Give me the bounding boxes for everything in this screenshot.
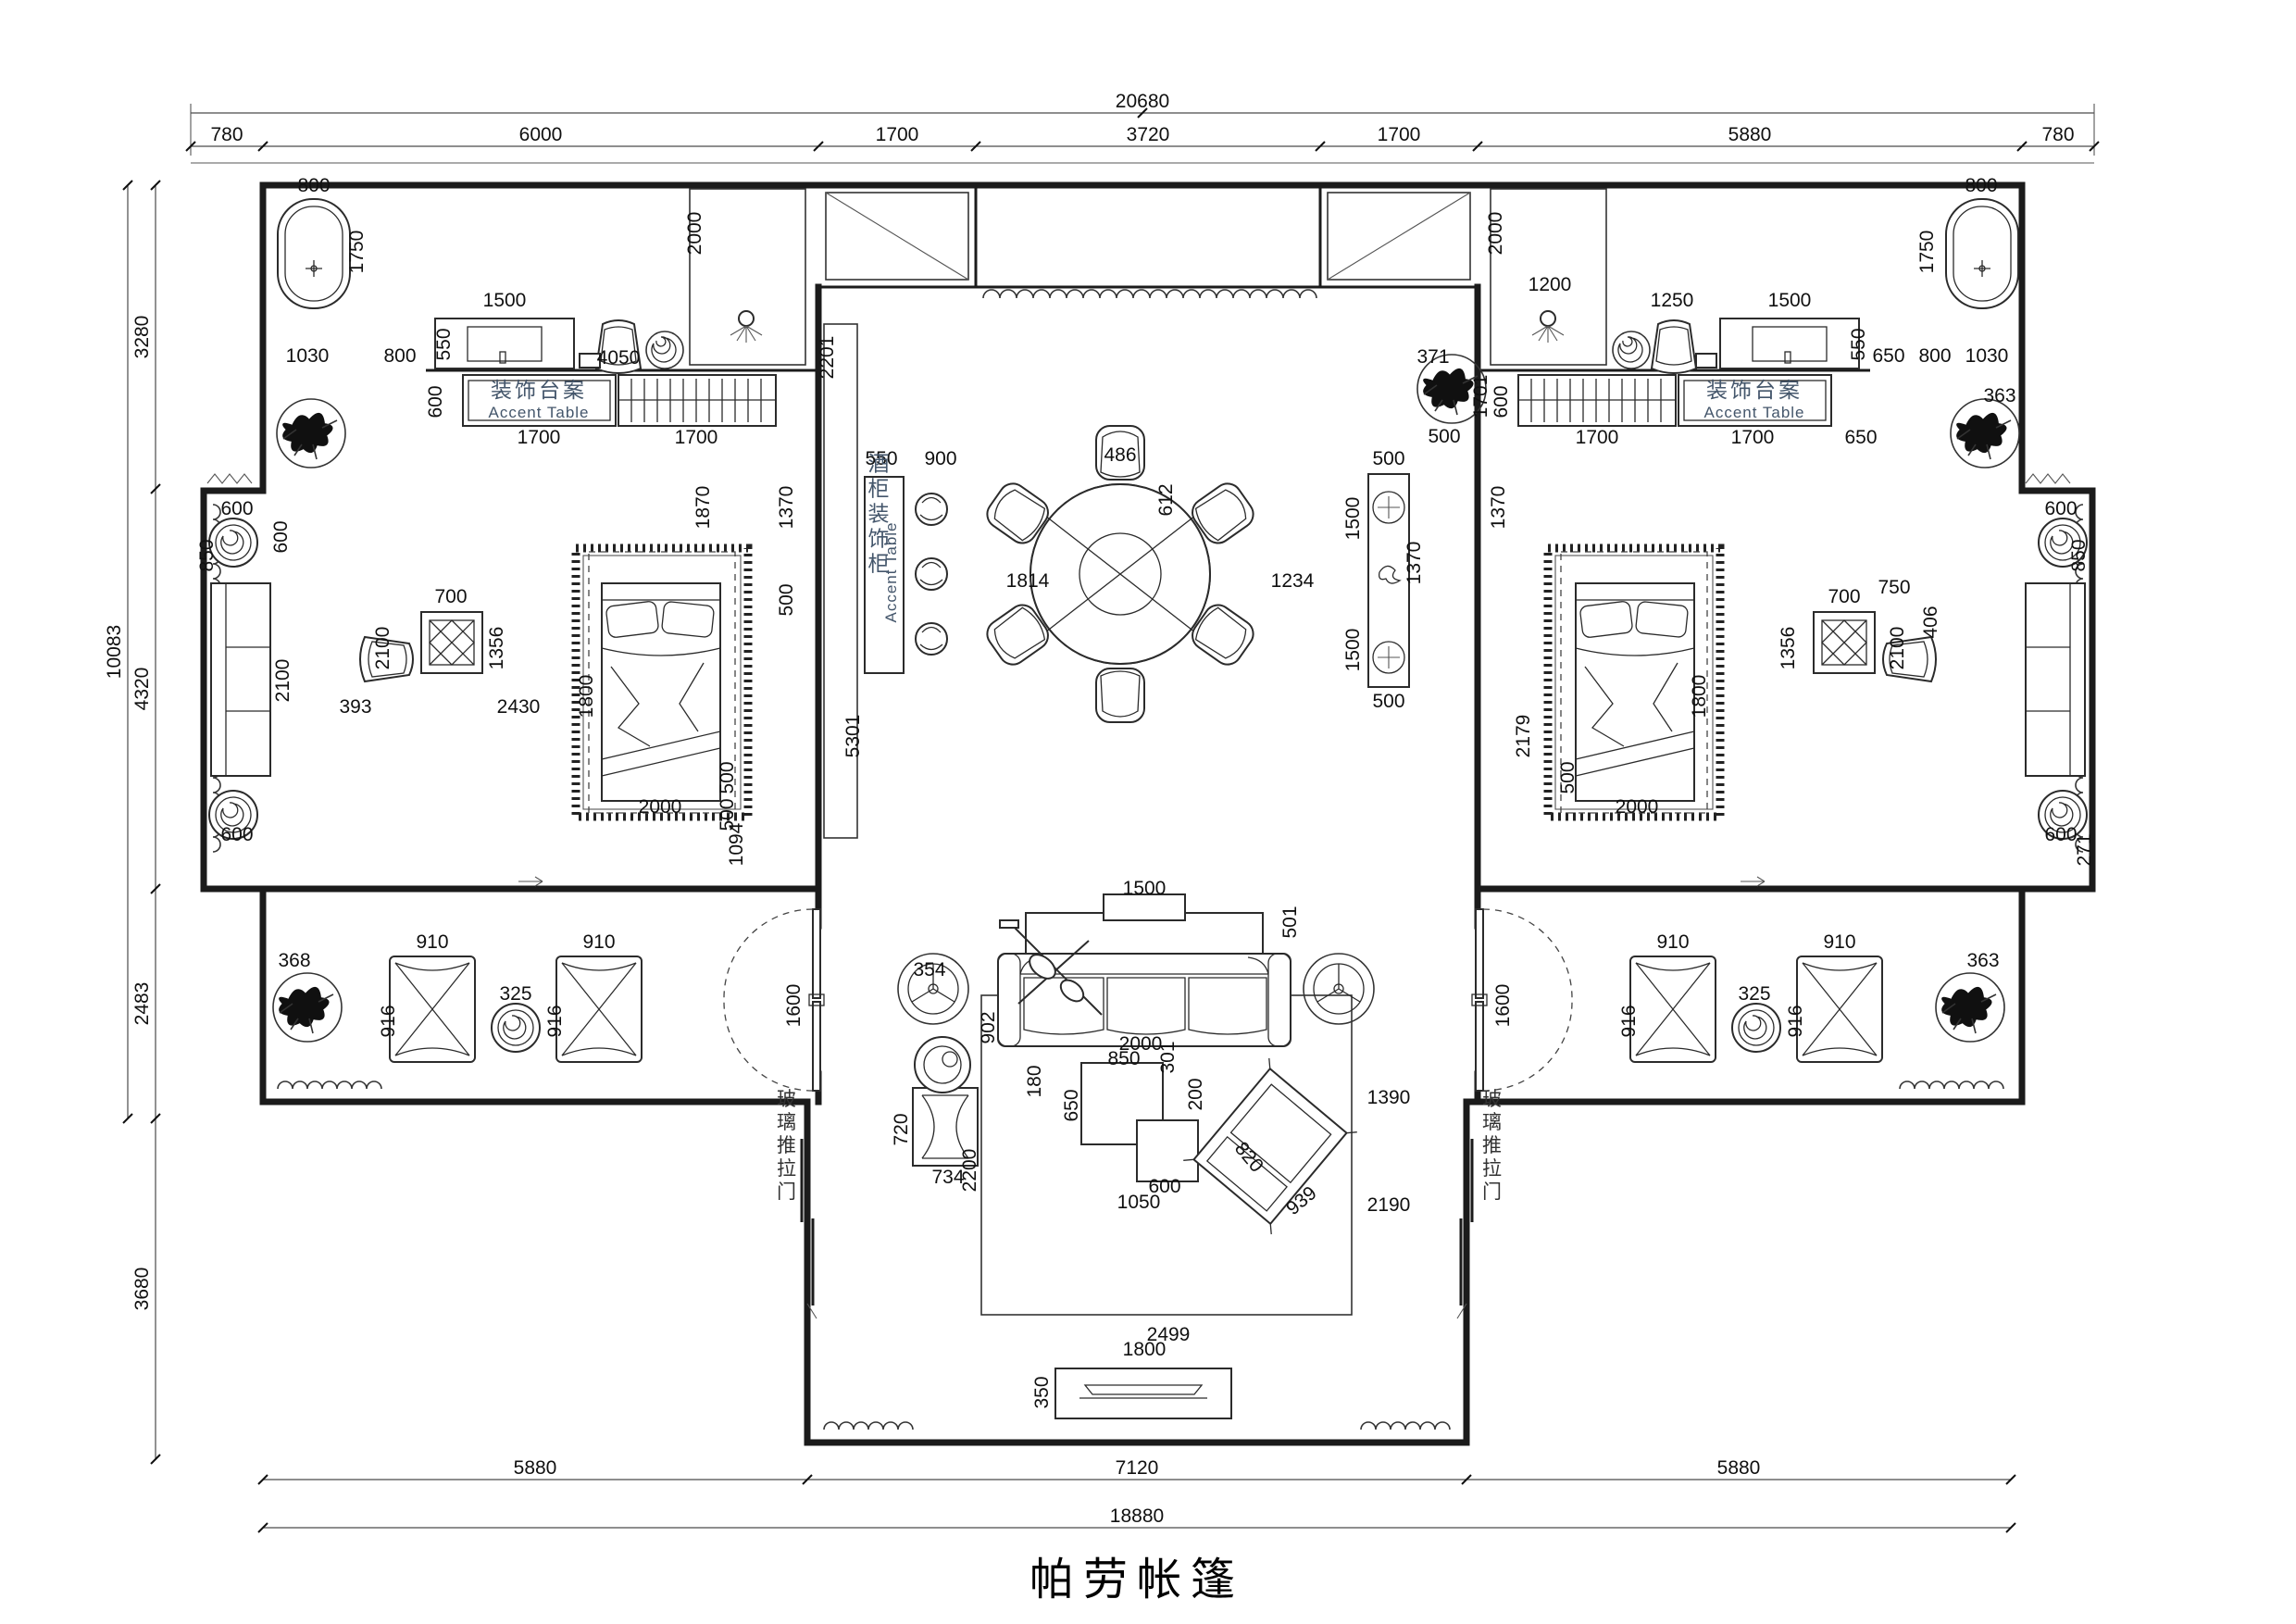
dim-label: 10083	[104, 625, 125, 679]
dim-label: 1356	[486, 627, 507, 670]
dim-label: 20680	[1116, 91, 1169, 112]
double-door	[724, 909, 824, 1091]
accent-table-label-en: Accent Table	[1703, 404, 1804, 421]
dim-label: 368	[278, 950, 310, 971]
dim-label: 500	[1372, 691, 1404, 712]
dim-label: 500	[1428, 426, 1460, 447]
dim-label: 363	[1966, 950, 1999, 971]
bathtub	[278, 199, 350, 308]
dim-labels-layer: 2068078060001700372017005880780100833280…	[104, 91, 2095, 1527]
fireplace-console	[1055, 1368, 1231, 1418]
dim-label: 2000	[639, 796, 682, 818]
dim-label: 4050	[597, 347, 641, 369]
dim-label: 1200	[1529, 274, 1572, 295]
dim-label: 354	[913, 959, 945, 981]
right-suite	[1491, 189, 2087, 839]
dim-label: 2100	[272, 659, 293, 703]
dim-label: 1700	[876, 124, 919, 145]
dim-label: 393	[339, 696, 371, 718]
dim-label: 1700	[1576, 427, 1619, 448]
dim-label: 1700	[518, 427, 561, 448]
dim-label: 1800	[576, 675, 597, 718]
plant-icon	[273, 973, 342, 1042]
dim-label: 734	[931, 1167, 964, 1188]
dim-label: 1500	[1342, 629, 1364, 672]
dim-label: 325	[499, 983, 531, 1005]
dim-label: 916	[1785, 1005, 1806, 1037]
dim-label: 750	[1878, 577, 1910, 598]
lounge-chair	[1797, 956, 1882, 1062]
dim-label: 500	[1372, 448, 1404, 469]
dim-label: 500	[1557, 761, 1578, 793]
lounge-chair	[1630, 956, 1716, 1062]
dim-label: 3680	[131, 1268, 153, 1311]
drawing-title: 帕劳帐篷	[1029, 1555, 1244, 1605]
dim-label: 910	[582, 931, 615, 953]
dim-label: 1370	[776, 486, 797, 530]
dim-label: 850	[2068, 539, 2090, 571]
dim-label: 902	[978, 1011, 999, 1043]
round-table	[492, 1004, 540, 1052]
dim-label: 600	[220, 824, 253, 845]
dim-label: 1370	[1404, 542, 1425, 585]
dim-label: 1234	[1271, 570, 1315, 592]
dim-label: 900	[924, 448, 956, 469]
dim-label: 850	[196, 539, 218, 571]
dim-label: 780	[210, 124, 243, 145]
dim-label: 玻璃推拉门	[1480, 1089, 1503, 1205]
dim-label: 850	[1107, 1048, 1140, 1069]
dim-label: 301	[1157, 1041, 1179, 1073]
dim-label: 406	[1920, 606, 1941, 638]
dim-label: 1814	[1006, 570, 1050, 592]
dim-label: 1390	[1367, 1087, 1411, 1108]
dim-label: 600	[2044, 824, 2077, 845]
dim-label: 720	[891, 1113, 912, 1145]
dim-label: 2000	[684, 212, 705, 256]
dim-label: 180	[1024, 1065, 1045, 1097]
left-suite	[209, 189, 805, 839]
dim-label: 5880	[1717, 1457, 1761, 1479]
dim-label: 1500	[483, 290, 527, 311]
dim-label: 350	[1031, 1376, 1053, 1408]
dim-label: 3720	[1127, 124, 1170, 145]
dim-label: 916	[1618, 1005, 1640, 1037]
sofa	[2026, 583, 2085, 776]
feature-wall	[824, 324, 857, 838]
dim-label: 1701	[1470, 375, 1491, 418]
dim-label: 2179	[1513, 715, 1534, 758]
side-lamp-table	[1304, 954, 1374, 1024]
dim-label: 650	[1844, 427, 1877, 448]
dim-label: 612	[1155, 483, 1177, 516]
dim-label: 7120	[1116, 1457, 1159, 1479]
dim-label: 1030	[1965, 345, 2009, 367]
chaise-chair	[1183, 1058, 1357, 1234]
plant-icon	[646, 331, 683, 369]
dim-label: 2483	[131, 982, 153, 1026]
dim-label: 271	[2074, 833, 2095, 866]
dim-label: 1250	[1651, 290, 1694, 311]
dim-label: 1500	[1123, 878, 1167, 899]
dim-label: 650	[1061, 1089, 1082, 1121]
dim-label: 1050	[1117, 1192, 1161, 1213]
dim-label: 18880	[1110, 1505, 1164, 1527]
dim-label: 500	[776, 583, 797, 616]
dim-label: 550	[1848, 328, 1869, 360]
accent-table-label-cn: 装饰台案	[1706, 378, 1803, 402]
dim-label: 910	[1823, 931, 1855, 953]
walls	[204, 185, 2092, 1443]
inlay-side-table	[1814, 612, 1875, 673]
dim-label: 916	[378, 1005, 399, 1037]
dim-label: 501	[1279, 906, 1301, 938]
dim-label: 1700	[1731, 427, 1775, 448]
double-door	[1472, 909, 1572, 1091]
dim-label: 2201	[817, 336, 838, 380]
vanity-chair	[1652, 320, 1696, 373]
dim-label: 700	[1828, 586, 1860, 607]
dim-label: 1500	[1342, 497, 1364, 541]
dim-label: 700	[434, 586, 467, 607]
dim-label: 800	[1965, 175, 1997, 196]
dim-label: 800	[383, 345, 416, 367]
dim-label: 600	[270, 520, 292, 553]
dim-label: 200	[1185, 1078, 1206, 1110]
plant-icon	[1936, 973, 2004, 1042]
shower-area	[690, 189, 805, 365]
vanity-table	[1720, 319, 1859, 369]
dim-label: 910	[416, 931, 448, 953]
dim-label: 1356	[1778, 627, 1799, 670]
plant-icon	[277, 399, 345, 468]
dim-label: 2430	[497, 696, 541, 718]
dim-label: 363	[1983, 385, 2015, 406]
dim-label: 1600	[783, 984, 805, 1028]
dim-label: 4320	[131, 668, 153, 711]
dim-label: 325	[1738, 983, 1770, 1005]
dim-label: 1700	[1378, 124, 1421, 145]
dim-label: 800	[297, 175, 330, 196]
dim-label: 玻璃推拉门	[775, 1089, 797, 1205]
dim-label: 3280	[131, 316, 153, 359]
floor-plan-drawing: 装饰台案 Accent Table 装饰台案 Accent Table 2068…	[0, 0, 2296, 1624]
inlay-side-table	[421, 612, 482, 673]
dim-label: 371	[1416, 346, 1449, 368]
dim-label: 1094	[726, 822, 747, 866]
dim-label: 910	[1656, 931, 1689, 953]
dim-label: 1800	[1123, 1339, 1167, 1360]
dim-label: 600	[1491, 385, 1512, 418]
dim-label: 2000	[1616, 796, 1659, 818]
dim-label: 600	[425, 385, 446, 418]
bed	[602, 583, 720, 801]
dim-label: 5301	[842, 715, 864, 758]
dim-label: 1500	[1768, 290, 1812, 311]
dim-label: 6000	[519, 124, 563, 145]
lounge-chair	[390, 956, 475, 1062]
dim-label: 1030	[286, 345, 330, 367]
dim-label: Accent Table	[882, 521, 900, 622]
coffee-table-small	[1137, 1120, 1198, 1181]
dim-label: 1750	[1916, 231, 1938, 274]
dim-label: 650	[1872, 345, 1904, 367]
sofa	[211, 583, 270, 776]
dim-label: 600	[220, 498, 253, 519]
dim-label: 780	[2041, 124, 2074, 145]
plant-icon	[1613, 331, 1650, 369]
dim-label: 2100	[372, 627, 393, 670]
dim-label: 1600	[1492, 984, 1514, 1028]
dim-label: 500	[717, 761, 738, 793]
floor-plan-page: 装饰台案 Accent Table 装饰台案 Accent Table 2068…	[0, 0, 2296, 1624]
plant-icon	[1951, 399, 2019, 468]
dim-label: 916	[544, 1005, 566, 1037]
dim-label: 600	[2044, 498, 2077, 519]
round-table	[1732, 1004, 1780, 1052]
bathtub	[1946, 199, 2018, 308]
dim-label: 800	[1918, 345, 1951, 367]
dim-label: 2100	[1887, 627, 1908, 670]
lounge-chair	[556, 956, 642, 1062]
dim-label: 1870	[693, 486, 714, 530]
dim-label: 2000	[1485, 212, 1506, 256]
dim-label: 1750	[346, 231, 368, 274]
dim-label: 1370	[1488, 486, 1509, 530]
dim-label: 5880	[514, 1457, 557, 1479]
accent-table-label-cn: 装饰台案	[491, 378, 587, 402]
dim-label: 1800	[1689, 675, 1710, 718]
dim-label: 2190	[1367, 1194, 1411, 1216]
dim-label: 5880	[1728, 124, 1772, 145]
dim-label: 1700	[675, 427, 718, 448]
left-terrace	[273, 909, 824, 1091]
dim-label: 550	[433, 328, 455, 360]
dim-label: 486	[1104, 444, 1136, 466]
bed	[1576, 583, 1694, 801]
accent-table-label-en: Accent Table	[488, 404, 589, 421]
vanity-table	[435, 319, 574, 369]
